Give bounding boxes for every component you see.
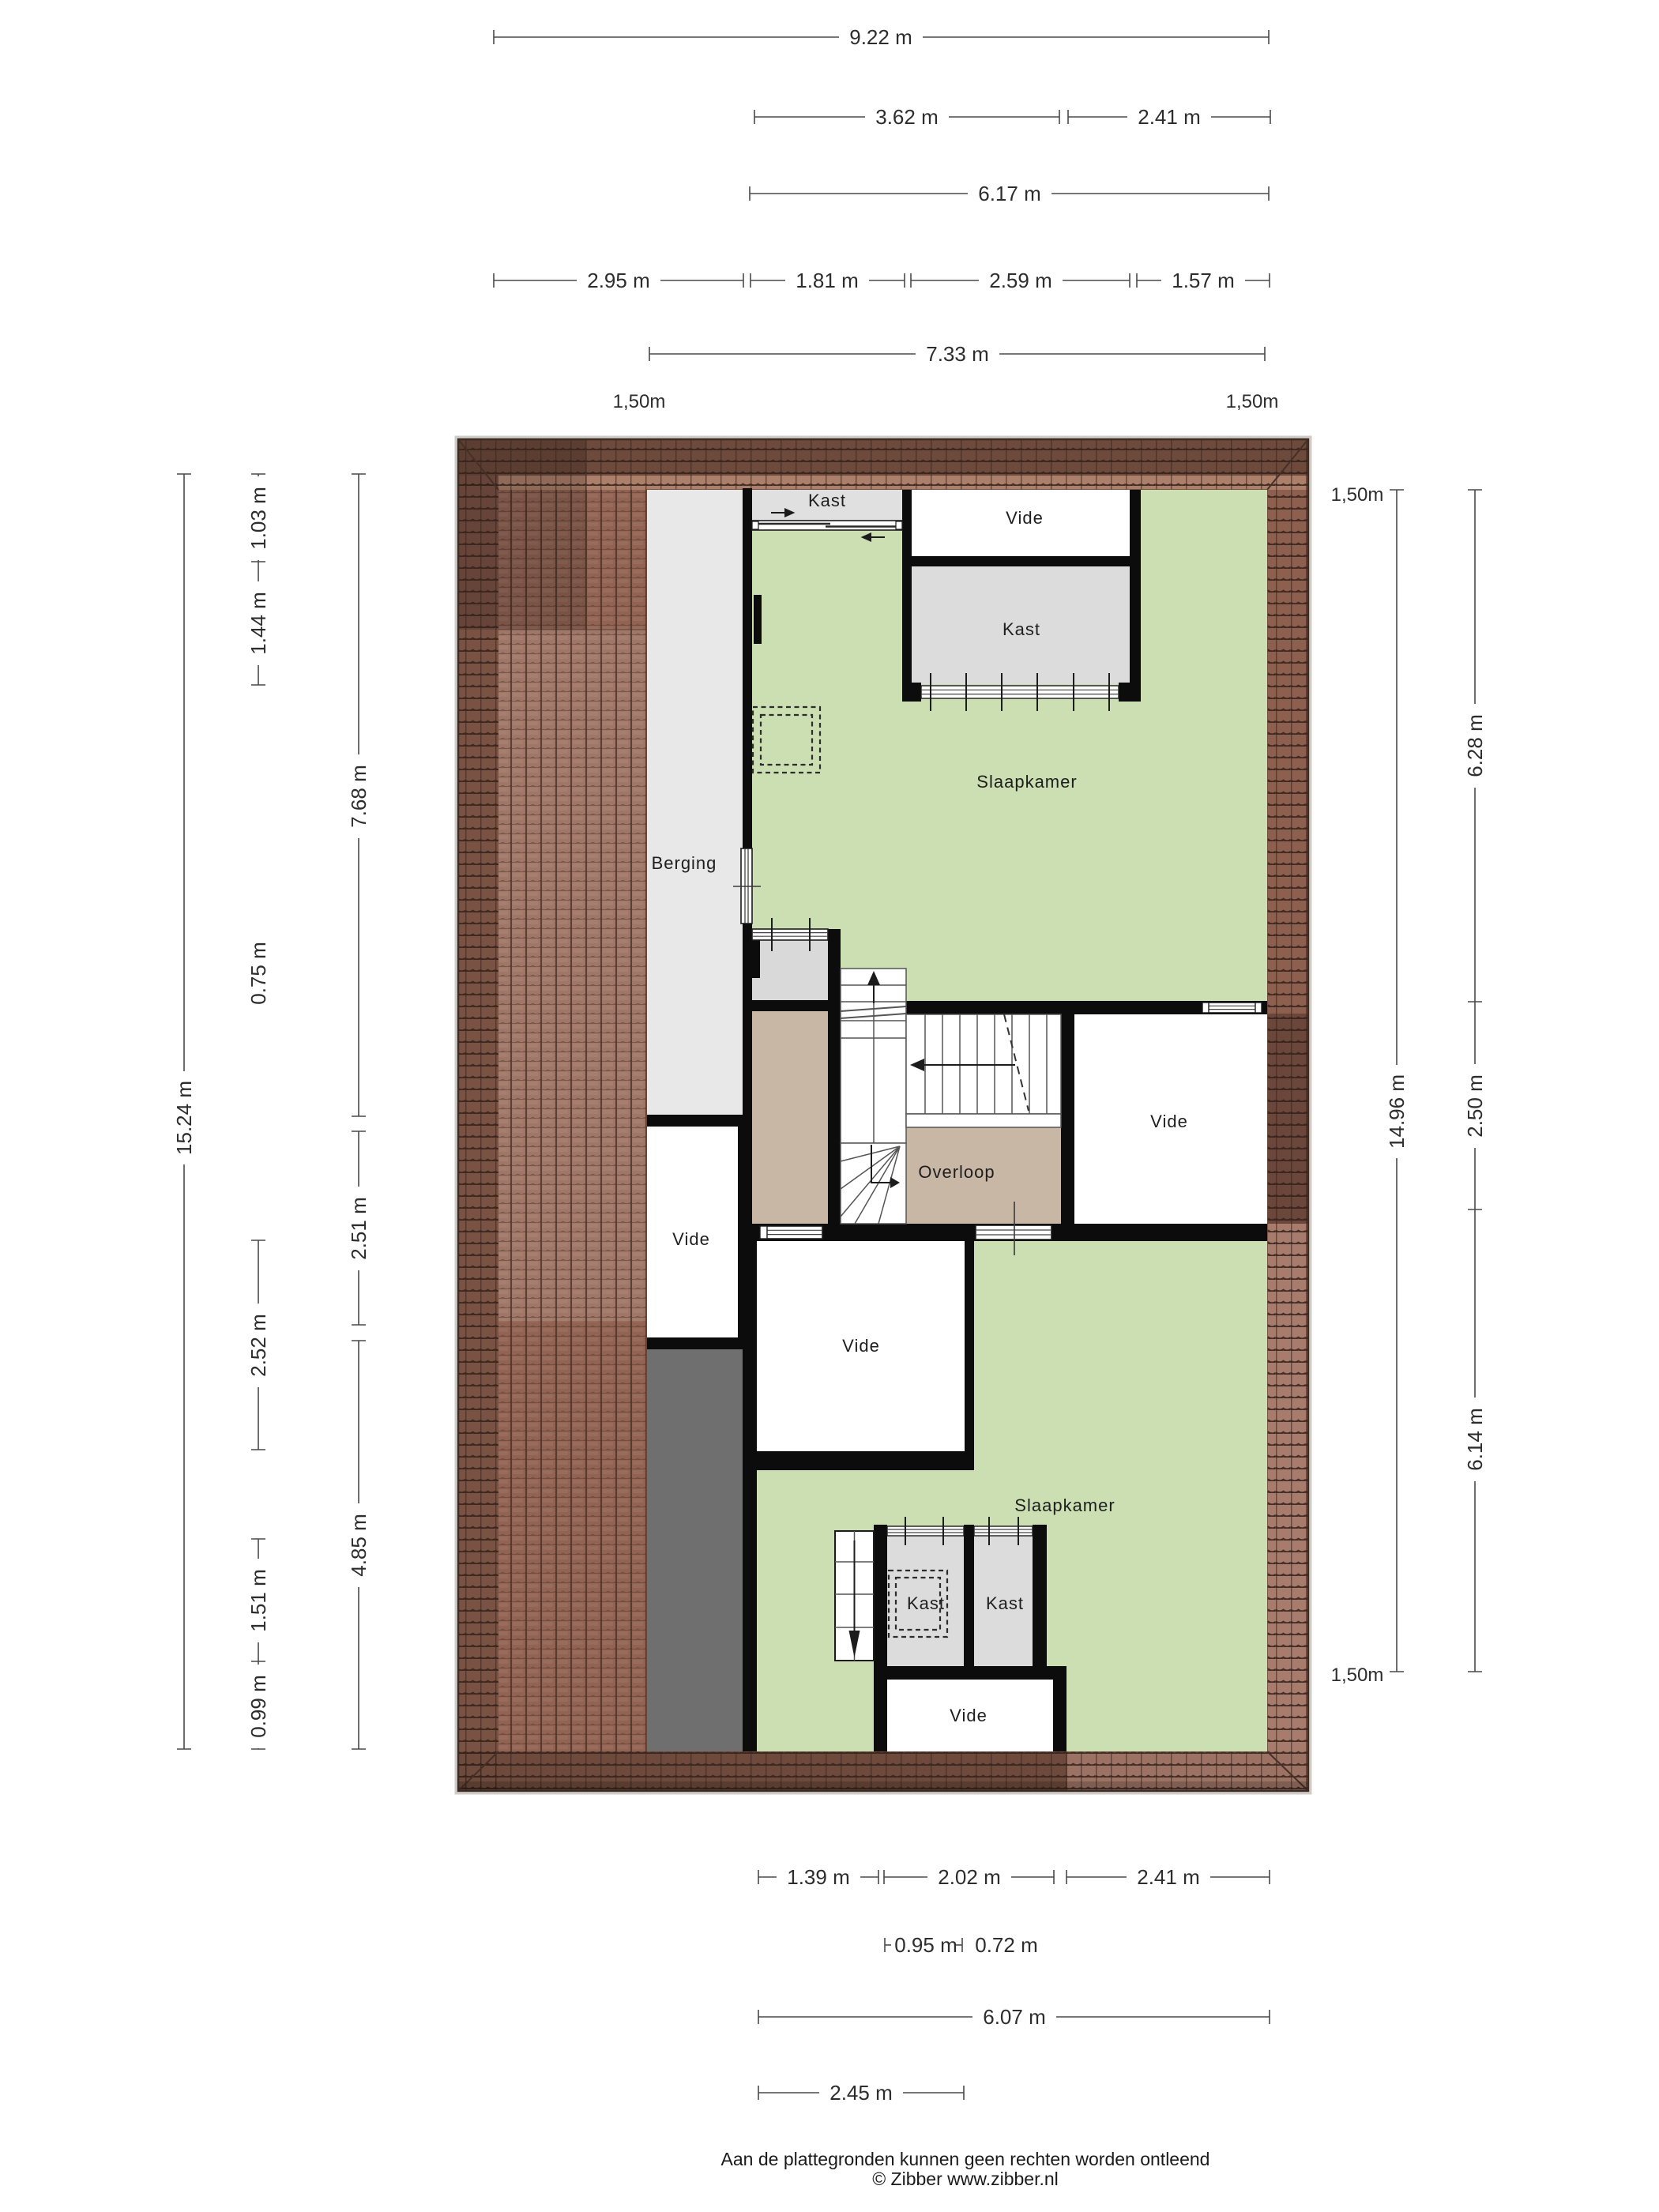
svg-text:Vide: Vide [842,1336,880,1356]
svg-text:2.41 m: 2.41 m [1137,1865,1200,1889]
svg-text:6.14 m: 6.14 m [1463,1408,1487,1471]
svg-text:Slaapkamer: Slaapkamer [976,772,1077,792]
svg-text:2.52 m: 2.52 m [246,1314,270,1377]
svg-text:Slaapkamer: Slaapkamer [1014,1495,1115,1515]
svg-text:Vide: Vide [1150,1112,1188,1131]
svg-text:1.03 m: 1.03 m [246,487,270,550]
svg-text:2.02 m: 2.02 m [938,1865,1001,1889]
svg-text:1.57 m: 1.57 m [1172,269,1235,292]
svg-text:Vide: Vide [1006,508,1044,528]
svg-text:Kast: Kast [808,491,846,510]
svg-text:15.24 m: 15.24 m [172,1081,196,1155]
svg-text:7.68 m: 7.68 m [347,765,371,828]
svg-text:Kast: Kast [1003,619,1040,639]
svg-text:1,50m: 1,50m [1331,484,1384,506]
svg-text:1.51 m: 1.51 m [246,1569,270,1632]
svg-text:0.75 m: 0.75 m [246,942,270,1005]
svg-text:3.62 m: 3.62 m [875,105,939,129]
svg-text:Kast: Kast [907,1593,945,1613]
svg-text:Overloop: Overloop [918,1162,995,1182]
svg-text:4.85 m: 4.85 m [347,1514,371,1577]
svg-text:6.17 m: 6.17 m [978,182,1041,205]
svg-text:1,50m: 1,50m [613,391,666,412]
svg-text:1,50m: 1,50m [1331,1665,1384,1686]
svg-text:14.96 m: 14.96 m [1385,1074,1409,1149]
svg-text:© Zibber www.zibber.nl: © Zibber www.zibber.nl [872,2169,1059,2189]
svg-text:Aan de plattegronden kunnen ge: Aan de plattegronden kunnen geen rechten… [721,2149,1210,2169]
svg-text:2.41 m: 2.41 m [1138,105,1201,129]
svg-text:7.33 m: 7.33 m [926,342,989,366]
svg-text:Kast: Kast [986,1593,1024,1613]
svg-text:0.99 m: 0.99 m [246,1675,270,1738]
svg-text:6.07 m: 6.07 m [983,2005,1046,2029]
svg-text:2.45 m: 2.45 m [829,2081,893,2105]
svg-text:2.59 m: 2.59 m [989,269,1052,292]
svg-text:6.28 m: 6.28 m [1463,714,1487,777]
svg-text:0.95 m: 0.95 m [894,1933,957,1957]
svg-text:Vide: Vide [950,1706,987,1725]
svg-text:Berging: Berging [652,853,717,873]
svg-text:2.95 m: 2.95 m [587,269,650,292]
svg-text:0.72 m: 0.72 m [975,1933,1038,1957]
svg-text:1.39 m: 1.39 m [787,1865,850,1889]
svg-text:1.81 m: 1.81 m [796,269,859,292]
svg-text:1,50m: 1,50m [1226,391,1279,412]
svg-text:2.50 m: 2.50 m [1463,1074,1487,1138]
svg-text:2.51 m: 2.51 m [347,1197,371,1260]
svg-text:Vide: Vide [672,1229,710,1249]
svg-text:9.22 m: 9.22 m [849,25,912,49]
svg-text:1.44 m: 1.44 m [246,592,270,655]
